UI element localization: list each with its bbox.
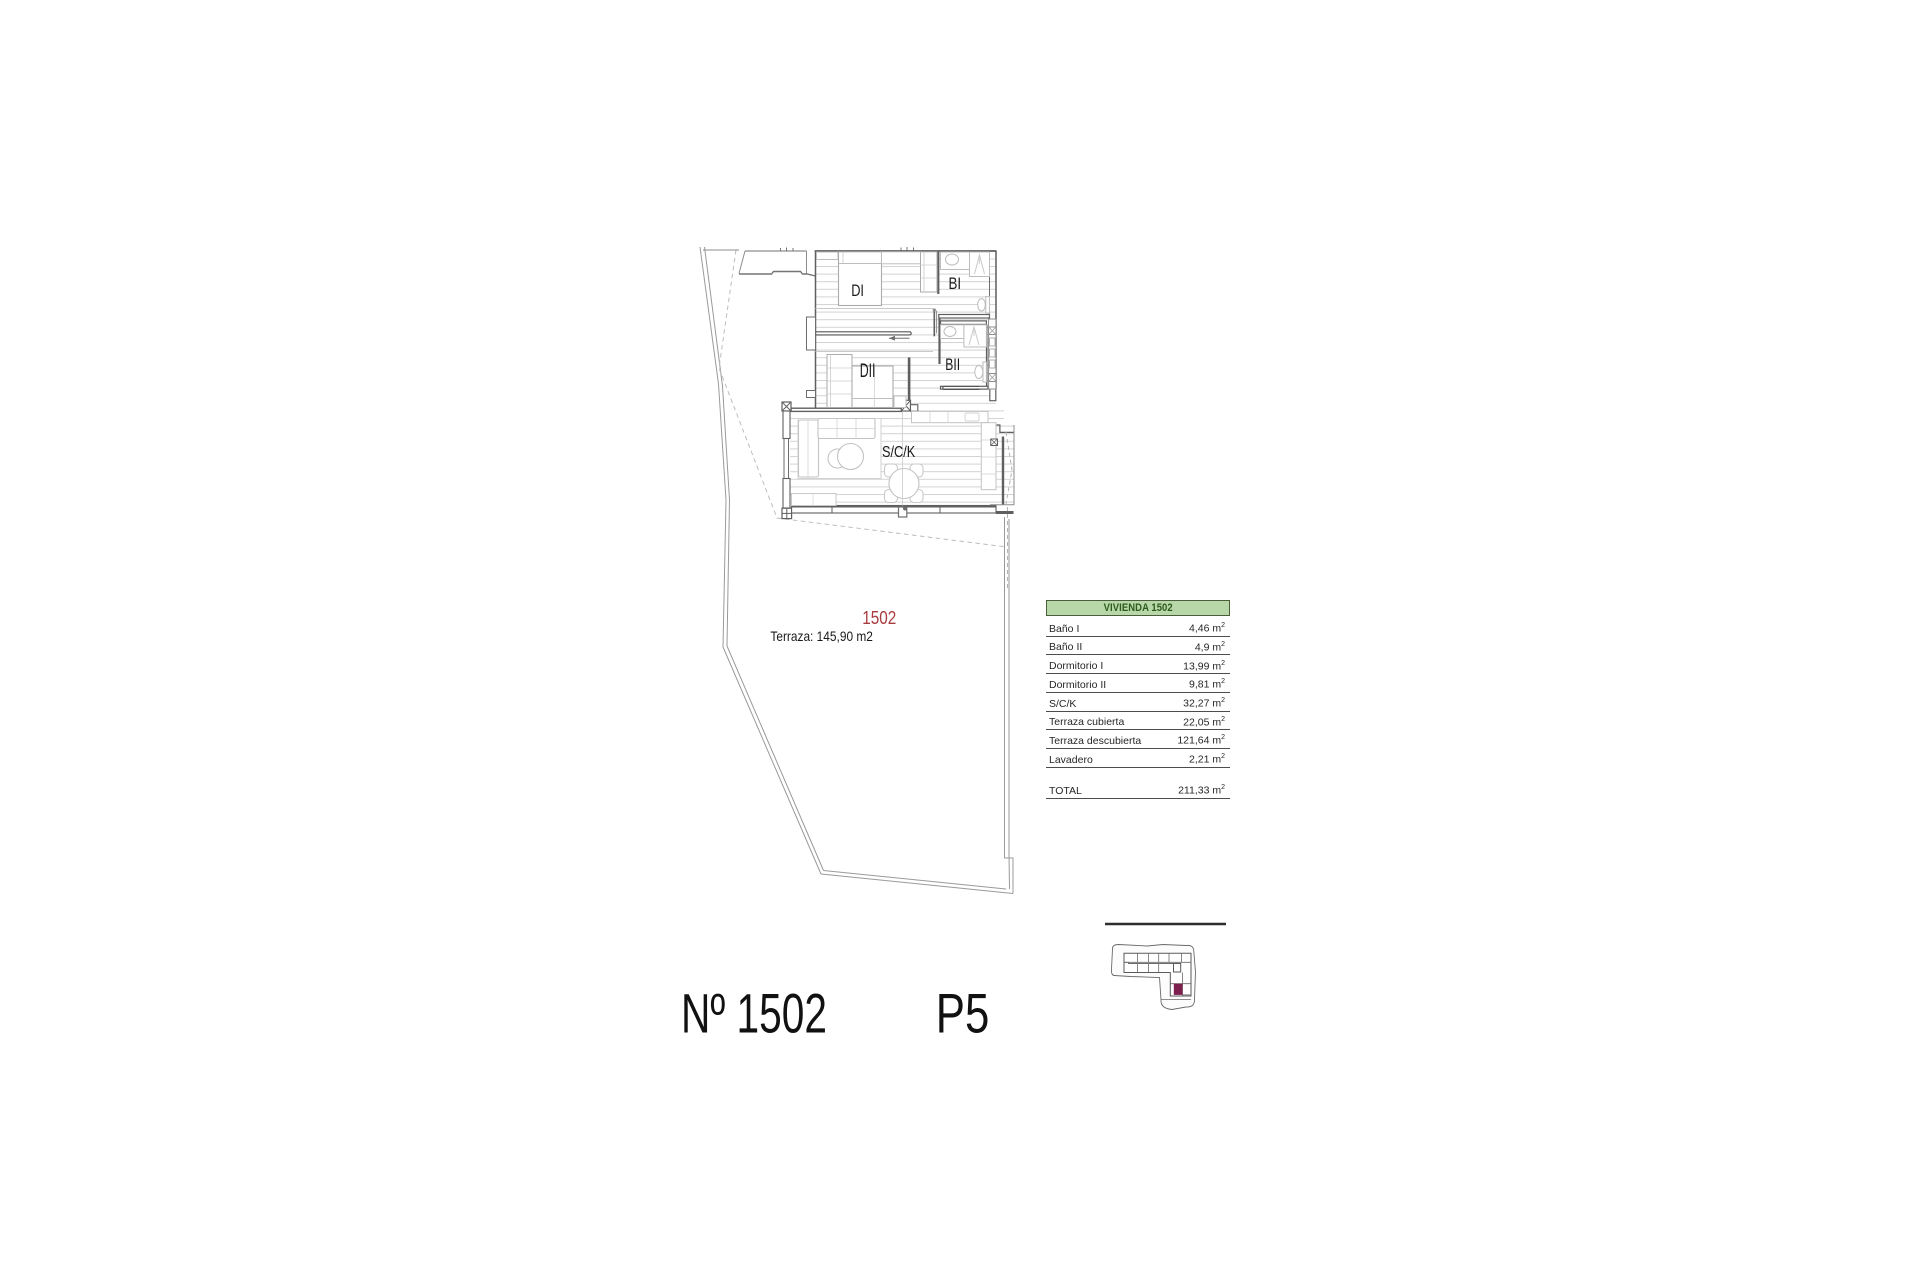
- svg-text:Nº 1502: Nº 1502: [681, 982, 827, 1044]
- svg-text:P5: P5: [936, 982, 990, 1044]
